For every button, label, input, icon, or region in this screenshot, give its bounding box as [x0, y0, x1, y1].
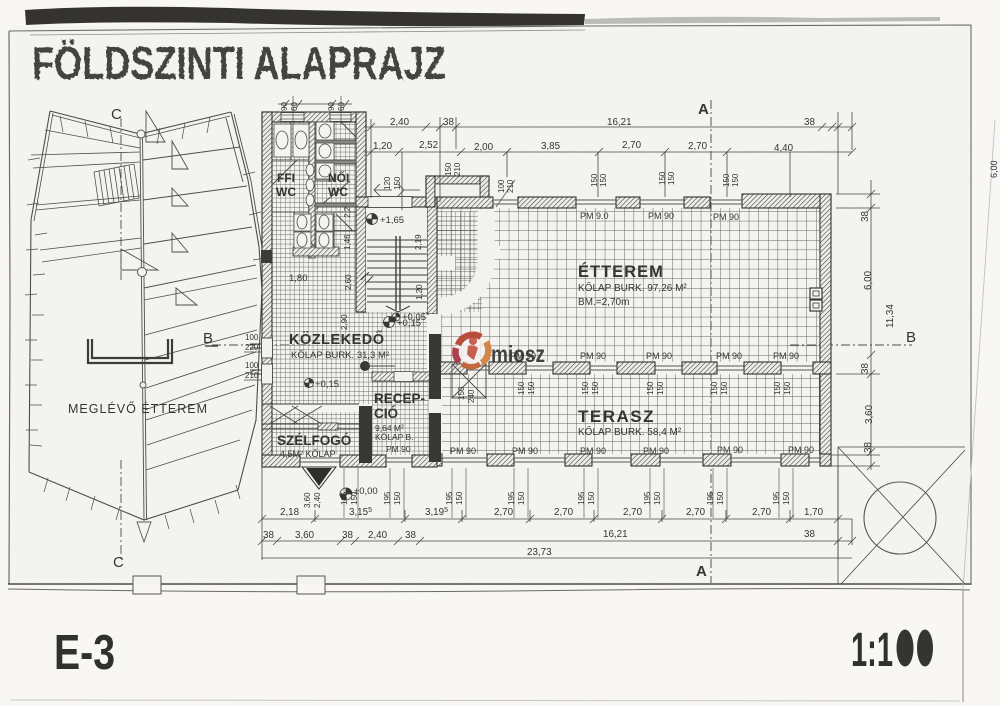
svg-text:1:1: 1:1 [851, 624, 893, 677]
svg-text:6,00: 6,00 [989, 160, 999, 178]
svg-text:E-3: E-3 [54, 626, 115, 680]
